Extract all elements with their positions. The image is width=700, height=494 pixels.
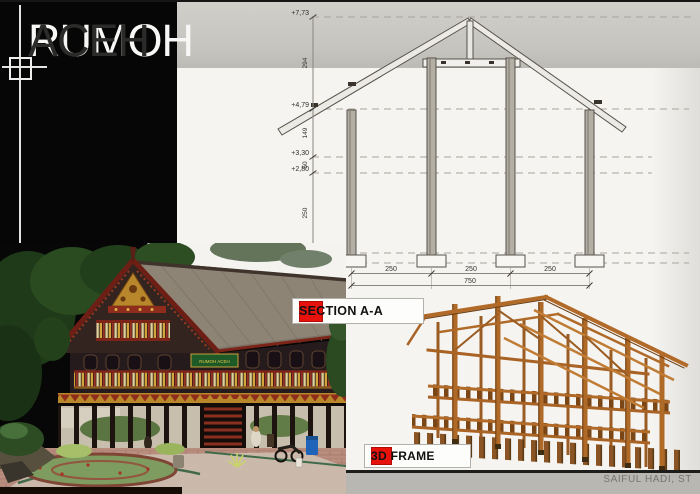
presentation-board: RUMOHACEH — [0, 0, 700, 494]
vertical-dim-label: 50 — [302, 161, 309, 169]
frame-label: 3D FRAME — [371, 449, 435, 463]
elevation-label: +7,73 — [291, 10, 309, 17]
vertical-dim-label: 250 — [302, 207, 309, 218]
elevation-label: +3,30 — [291, 150, 309, 157]
bay-dim-label: 250 — [465, 266, 477, 273]
sign-text: RUMOH ACEH — [199, 359, 230, 364]
top-border-line — [0, 0, 700, 2]
title-part-aceh: ACEH — [28, 20, 149, 62]
staircase — [200, 399, 246, 451]
stilt-level — [58, 399, 346, 451]
bay-dim-label: 250 — [385, 266, 397, 273]
vertical-dim-label: 294 — [302, 57, 309, 68]
section-legend: SECTION A-A — [292, 298, 424, 324]
total-dim-label: 750 — [464, 278, 476, 285]
top-beams — [408, 297, 686, 374]
balustrade — [74, 371, 346, 388]
frame-legend: 3D FRAME — [364, 444, 471, 468]
level-dashed-lines — [312, 17, 696, 263]
section-label: SECTION A-A — [299, 304, 383, 318]
photo-bottom-strip — [0, 487, 182, 494]
house-photo: RUMOH ACEH — [0, 243, 346, 494]
planter-urn — [173, 455, 184, 468]
vertical-dim-label: 149 — [302, 127, 309, 138]
elevation-label: +4,79 — [291, 102, 309, 109]
roof-rafters — [278, 18, 626, 135]
bay-dim-label: 250 — [544, 266, 556, 273]
footer-credit: SAIFUL HADI, ST — [603, 474, 692, 485]
name-sign: RUMOH ACEH — [191, 354, 238, 367]
person — [267, 434, 274, 447]
